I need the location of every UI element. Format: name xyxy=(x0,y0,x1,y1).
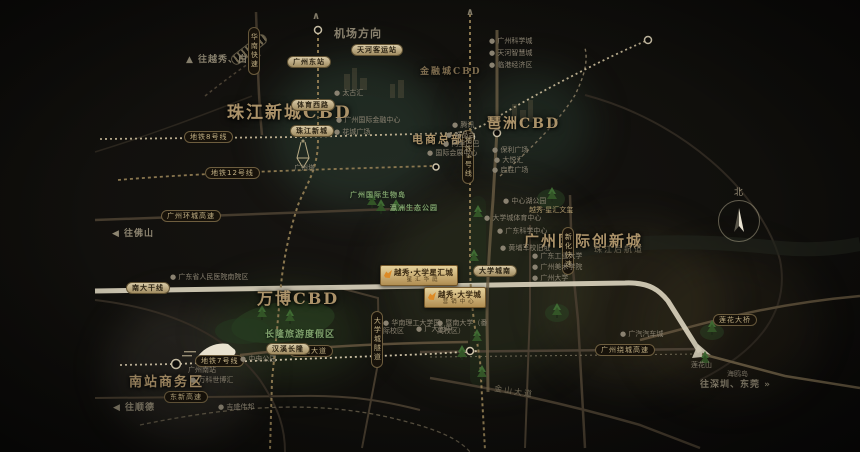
station-tianhe-bus: 天河客运站 xyxy=(351,44,403,56)
road-pill-metro12: 地铁12号线 xyxy=(205,167,260,179)
river-zhujiang-rear-channel: 珠江后航道 xyxy=(594,245,644,255)
poi-tencent: ● 腾讯 xyxy=(452,121,474,129)
compass-ring xyxy=(718,200,760,242)
poi-alibaba: ● 阿里巴巴 xyxy=(443,140,479,148)
park-bio-island: 广州国际生物岛 xyxy=(350,191,406,199)
road-pill-huancheng-expwy: 广州环城高速 xyxy=(161,210,221,222)
poi-science-city: ● 广州科学城 xyxy=(489,37,532,45)
chevron-up-icon: ∧ xyxy=(466,7,475,19)
project-badge-title: 越秀·大学星汇城 xyxy=(394,268,453,277)
poi-gac-auto-city: ● 广汽汽车城 xyxy=(620,330,663,338)
map-canvas: 北 珠江新城CBD琶洲CBD金融城CBD电商总部广州国际创新城万博CBD南站商务… xyxy=(0,0,860,452)
road-pill-uc-tunnel: 大学城隧道 xyxy=(371,311,383,368)
poi-poly-plaza: ● 保利广场 xyxy=(492,146,528,154)
project-badge-main: 越秀·大学星汇城星汇华庭 xyxy=(380,265,458,286)
station-hanxi-changlong: 汉溪长隆 xyxy=(266,343,310,355)
road-pill-huanan-expwy: 华南快速 xyxy=(248,27,260,75)
poi-jinan-university: ● 暨南大学（番禺校区） xyxy=(437,319,492,336)
poi-xinghui-wenxi: 越秀·星汇文玺 xyxy=(529,206,573,214)
station-uc-south: 大学城南 xyxy=(473,265,517,277)
poi-dayue-hui: ● 大悦汇 xyxy=(494,156,523,164)
poi-vanke-expo-hub: ● 万科世博汇 xyxy=(190,376,233,384)
park-changlong-resort: 长隆旅游度假区 xyxy=(265,330,335,341)
region-pazhou-cbd: 琶洲CBD xyxy=(487,116,560,133)
chevron-up-icon: ∧ xyxy=(312,11,321,23)
poi-convention-center: ● 国际会展中心 xyxy=(427,149,477,157)
poi-canton-tower: 广州塔 xyxy=(294,164,315,172)
project-badge-subtitle: 星汇华庭 xyxy=(407,277,441,284)
poi-lianhua-mountain: 莲花山 xyxy=(691,361,712,369)
poi-jisheng-weibang: ● 吉盛伟邦 xyxy=(218,403,254,411)
project-badge-subtitle: 营销中心 xyxy=(443,299,477,306)
poi-gafa: ● 广州美术学院 xyxy=(532,263,582,271)
poi-central-park: ● 中央公园 xyxy=(240,355,276,363)
road-pill-nanda-trunk: 南大干线 xyxy=(126,282,170,294)
park-yingzhou-eco: 瀛洲生态公园 xyxy=(390,204,438,212)
poi-vipshop: ● 唯品会 xyxy=(446,131,475,139)
road-jinshan-avenue: 金山大道 xyxy=(493,384,534,400)
poi-provincial-hospital: ● 广东省人民医院南院区 xyxy=(170,273,248,281)
poi-huacheng-square: ● 花城广场 xyxy=(334,128,370,136)
poi-haiou-island: 海鸥岛 xyxy=(727,370,748,378)
road-pill-raocheng-expwy: 广州绕城高速 xyxy=(595,344,655,356)
poi-uc-sports-center: ● 大学城体育中心 xyxy=(484,214,541,222)
poi-guangzhou-university: ● 广州大学 xyxy=(532,274,568,282)
road-pill-metro8: 地铁8号线 xyxy=(184,131,233,143)
station-guangzhou-east: 广州东站 xyxy=(287,56,331,68)
direction-airport: 机场方向 xyxy=(334,27,382,40)
compass-needle-icon xyxy=(726,206,752,236)
station-zhujiang-new-town: 珠江新城 xyxy=(290,125,334,137)
project-badge-secondary: 越秀·大学城营销中心 xyxy=(424,287,486,308)
region-wanbo-cbd: 万博CBD xyxy=(257,289,339,308)
developer-logo-icon xyxy=(384,270,392,278)
compass: 北 xyxy=(716,180,762,238)
region-financial-city: 金融城CBD xyxy=(420,67,482,78)
poi-central-lake-park: ● 中心湖公园 xyxy=(503,197,546,205)
direction-foshan: ◀ 往佛山 xyxy=(112,229,154,240)
compass-north-label: 北 xyxy=(734,188,744,198)
poi-smart-city: ● 天河智慧城 xyxy=(489,49,532,57)
project-badge-title: 越秀·大学城 xyxy=(438,290,481,299)
poi-qisheng-plaza: ● 启胜广场 xyxy=(492,166,528,174)
poi-guangzhou-south-station: 广州南站 xyxy=(188,366,216,374)
road-pill-lianhua-bridge: 莲花大桥 xyxy=(713,314,757,326)
station-tiyu-xilu: 体育西路 xyxy=(291,99,335,111)
road-pill-dongxin-expwy: 东新高速 xyxy=(164,391,208,403)
poi-gdut: ● 广东工业大学 xyxy=(532,252,582,260)
developer-logo-icon xyxy=(428,292,436,300)
direction-shenzhen-dongguan: 往深圳、东莞 » xyxy=(700,380,771,391)
poi-gz-ifc: ● 广州国际金融中心 xyxy=(336,116,400,124)
poi-taikoo-hui: ● 太古汇 xyxy=(334,89,363,97)
poi-port-economic-zone: ● 临港经济区 xyxy=(489,61,532,69)
poi-gd-science-center: ● 广东科学中心 xyxy=(497,227,547,235)
direction-shunde: ◀ 往顺德 xyxy=(113,403,155,414)
